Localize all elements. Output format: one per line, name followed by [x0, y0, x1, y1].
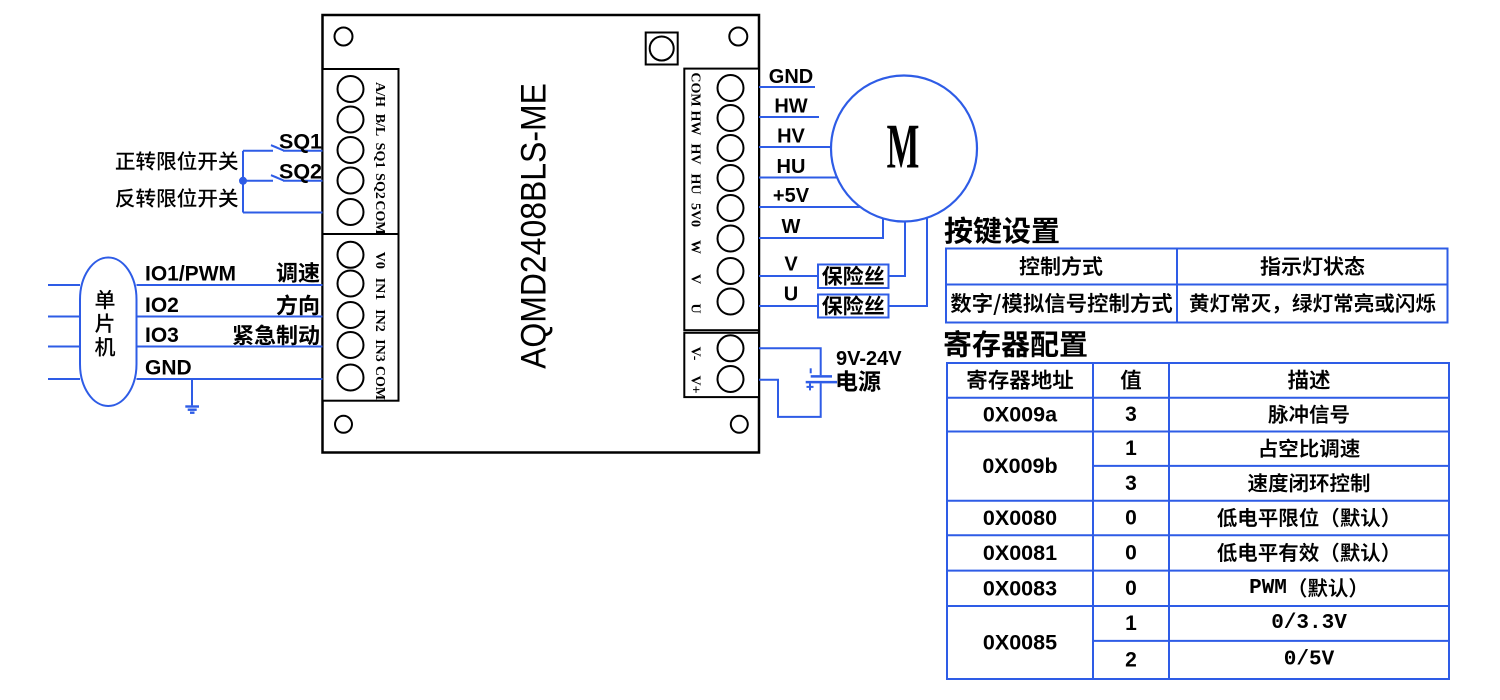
svg-text:W: W	[688, 240, 703, 254]
svg-text:V: V	[784, 254, 798, 276]
svg-text:B/L: B/L	[372, 114, 387, 137]
svg-text:U: U	[784, 284, 798, 306]
svg-text:0X0081: 0X0081	[983, 541, 1057, 565]
svg-text:5V0: 5V0	[688, 203, 703, 227]
svg-text:W: W	[782, 216, 801, 238]
svg-text:3: 3	[1125, 403, 1137, 426]
svg-text:GND: GND	[769, 66, 813, 88]
svg-text:COM: COM	[372, 200, 387, 234]
svg-text:0X009b: 0X009b	[982, 454, 1057, 478]
svg-text:HU: HU	[688, 174, 703, 195]
svg-text:IN2: IN2	[372, 309, 387, 332]
svg-text:0X0080: 0X0080	[983, 506, 1057, 530]
svg-text:HW: HW	[774, 96, 807, 118]
svg-text:SQ2: SQ2	[279, 159, 322, 183]
svg-text:0X0085: 0X0085	[983, 631, 1057, 655]
svg-text:2: 2	[1125, 648, 1137, 671]
svg-text:0/5V: 0/5V	[1284, 648, 1335, 671]
svg-text:M: M	[887, 112, 920, 181]
svg-text:A/H: A/H	[372, 82, 387, 107]
svg-text:GND: GND	[145, 357, 192, 380]
svg-text:0: 0	[1125, 577, 1137, 600]
svg-text:1: 1	[1125, 612, 1137, 635]
svg-text:1: 1	[1125, 437, 1137, 460]
svg-text:V: V	[688, 274, 703, 284]
svg-text:0: 0	[1125, 507, 1137, 530]
svg-text:IN1: IN1	[372, 278, 387, 301]
svg-text:0: 0	[1125, 541, 1137, 564]
svg-text:U: U	[688, 303, 703, 313]
svg-text:0/3.3V: 0/3.3V	[1271, 612, 1347, 635]
svg-text:+5V: +5V	[773, 185, 810, 207]
svg-text:0X009a: 0X009a	[983, 403, 1058, 427]
svg-text:9V-24V: 9V-24V	[836, 348, 902, 370]
svg-text:V0: V0	[372, 252, 387, 269]
svg-text:0X0083: 0X0083	[983, 576, 1057, 600]
svg-text:AQMD2408BLS-ME: AQMD2408BLS-ME	[515, 83, 554, 369]
svg-text:IO2: IO2	[145, 294, 179, 317]
svg-text:SQ1: SQ1	[372, 143, 387, 169]
svg-text:HV: HV	[688, 144, 703, 165]
svg-text:IO3: IO3	[145, 324, 179, 347]
svg-text:V-: V-	[688, 347, 703, 361]
svg-text:COM: COM	[688, 72, 703, 106]
svg-text:IN3: IN3	[372, 339, 387, 362]
svg-text:IO1/PWM: IO1/PWM	[145, 263, 236, 286]
svg-text:COM: COM	[372, 366, 387, 400]
svg-text:HV: HV	[777, 126, 805, 148]
svg-text:V+: V+	[688, 375, 703, 393]
svg-text:3: 3	[1125, 472, 1137, 495]
svg-text:SQ1: SQ1	[279, 129, 322, 153]
svg-text:PWM: PWM	[1249, 577, 1287, 600]
svg-text:HW: HW	[688, 111, 703, 136]
svg-text:HU: HU	[777, 156, 806, 178]
svg-text:SQ2: SQ2	[372, 173, 387, 199]
